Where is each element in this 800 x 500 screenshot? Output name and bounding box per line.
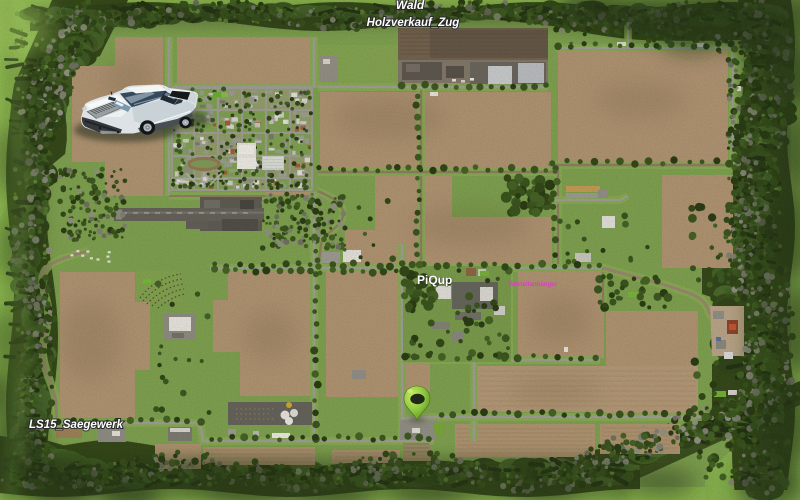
svg-text:Wald: Wald (396, 0, 425, 12)
svg-text:PiQup: PiQup (417, 273, 452, 287)
svg-text:LS15_Saegewerk: LS15_Saegewerk (29, 419, 124, 431)
svg-text:Abstellanhänger: Abstellanhänger (509, 281, 557, 288)
svg-text:Holzverkauf_Zug: Holzverkauf_Zug (367, 17, 460, 29)
